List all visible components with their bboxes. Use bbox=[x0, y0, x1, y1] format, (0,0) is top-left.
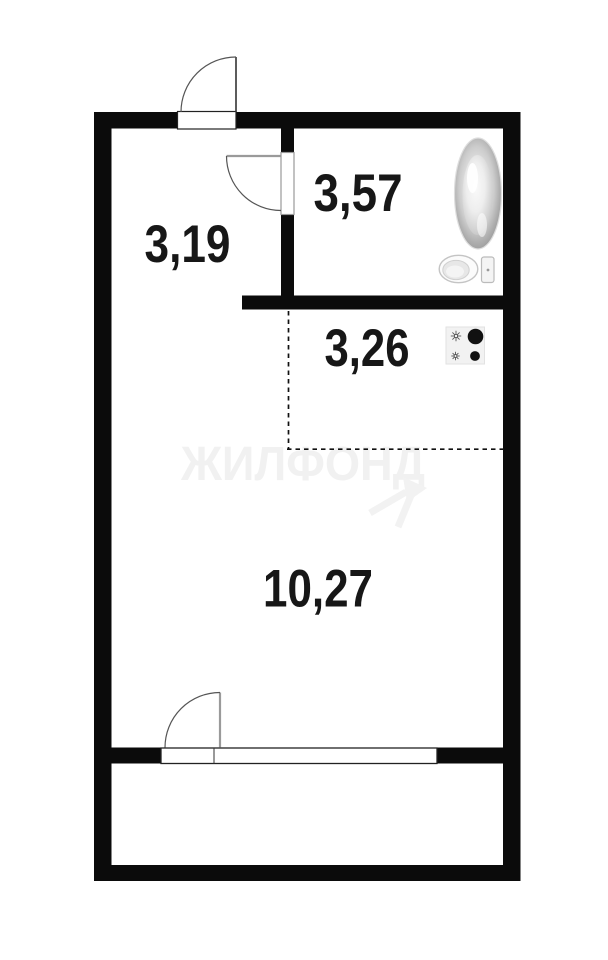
svg-text:ЖИЛФОНД: ЖИЛФОНД bbox=[180, 438, 425, 491]
svg-text:3,57: 3,57 bbox=[314, 164, 403, 223]
svg-text:3,19: 3,19 bbox=[145, 215, 231, 274]
svg-text:3,26: 3,26 bbox=[325, 319, 410, 378]
svg-text:10,27: 10,27 bbox=[263, 560, 373, 619]
